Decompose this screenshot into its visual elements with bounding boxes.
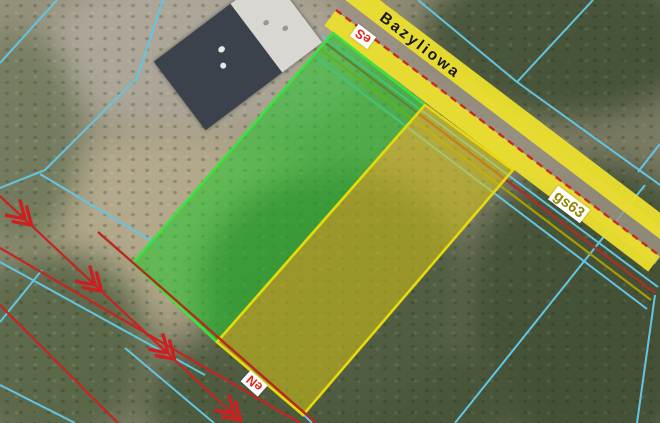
parcel-boundary-line: [0, 0, 163, 188]
map-vector-overlay: [0, 0, 660, 423]
map-viewport: Bazyliowa eS gs63 eN: [0, 0, 660, 423]
parcel-boundary-line: [637, 295, 655, 423]
parcel-boundary-line: [638, 144, 660, 172]
parcel-boundary-line: [0, 385, 75, 423]
parcel-boundary-line: [517, 0, 593, 82]
parcel-boundary-line: [0, 270, 42, 322]
parcel-boundary-line: [0, 0, 57, 63]
survey-line: [0, 305, 118, 423]
direction-arrow-icon: [215, 396, 247, 423]
